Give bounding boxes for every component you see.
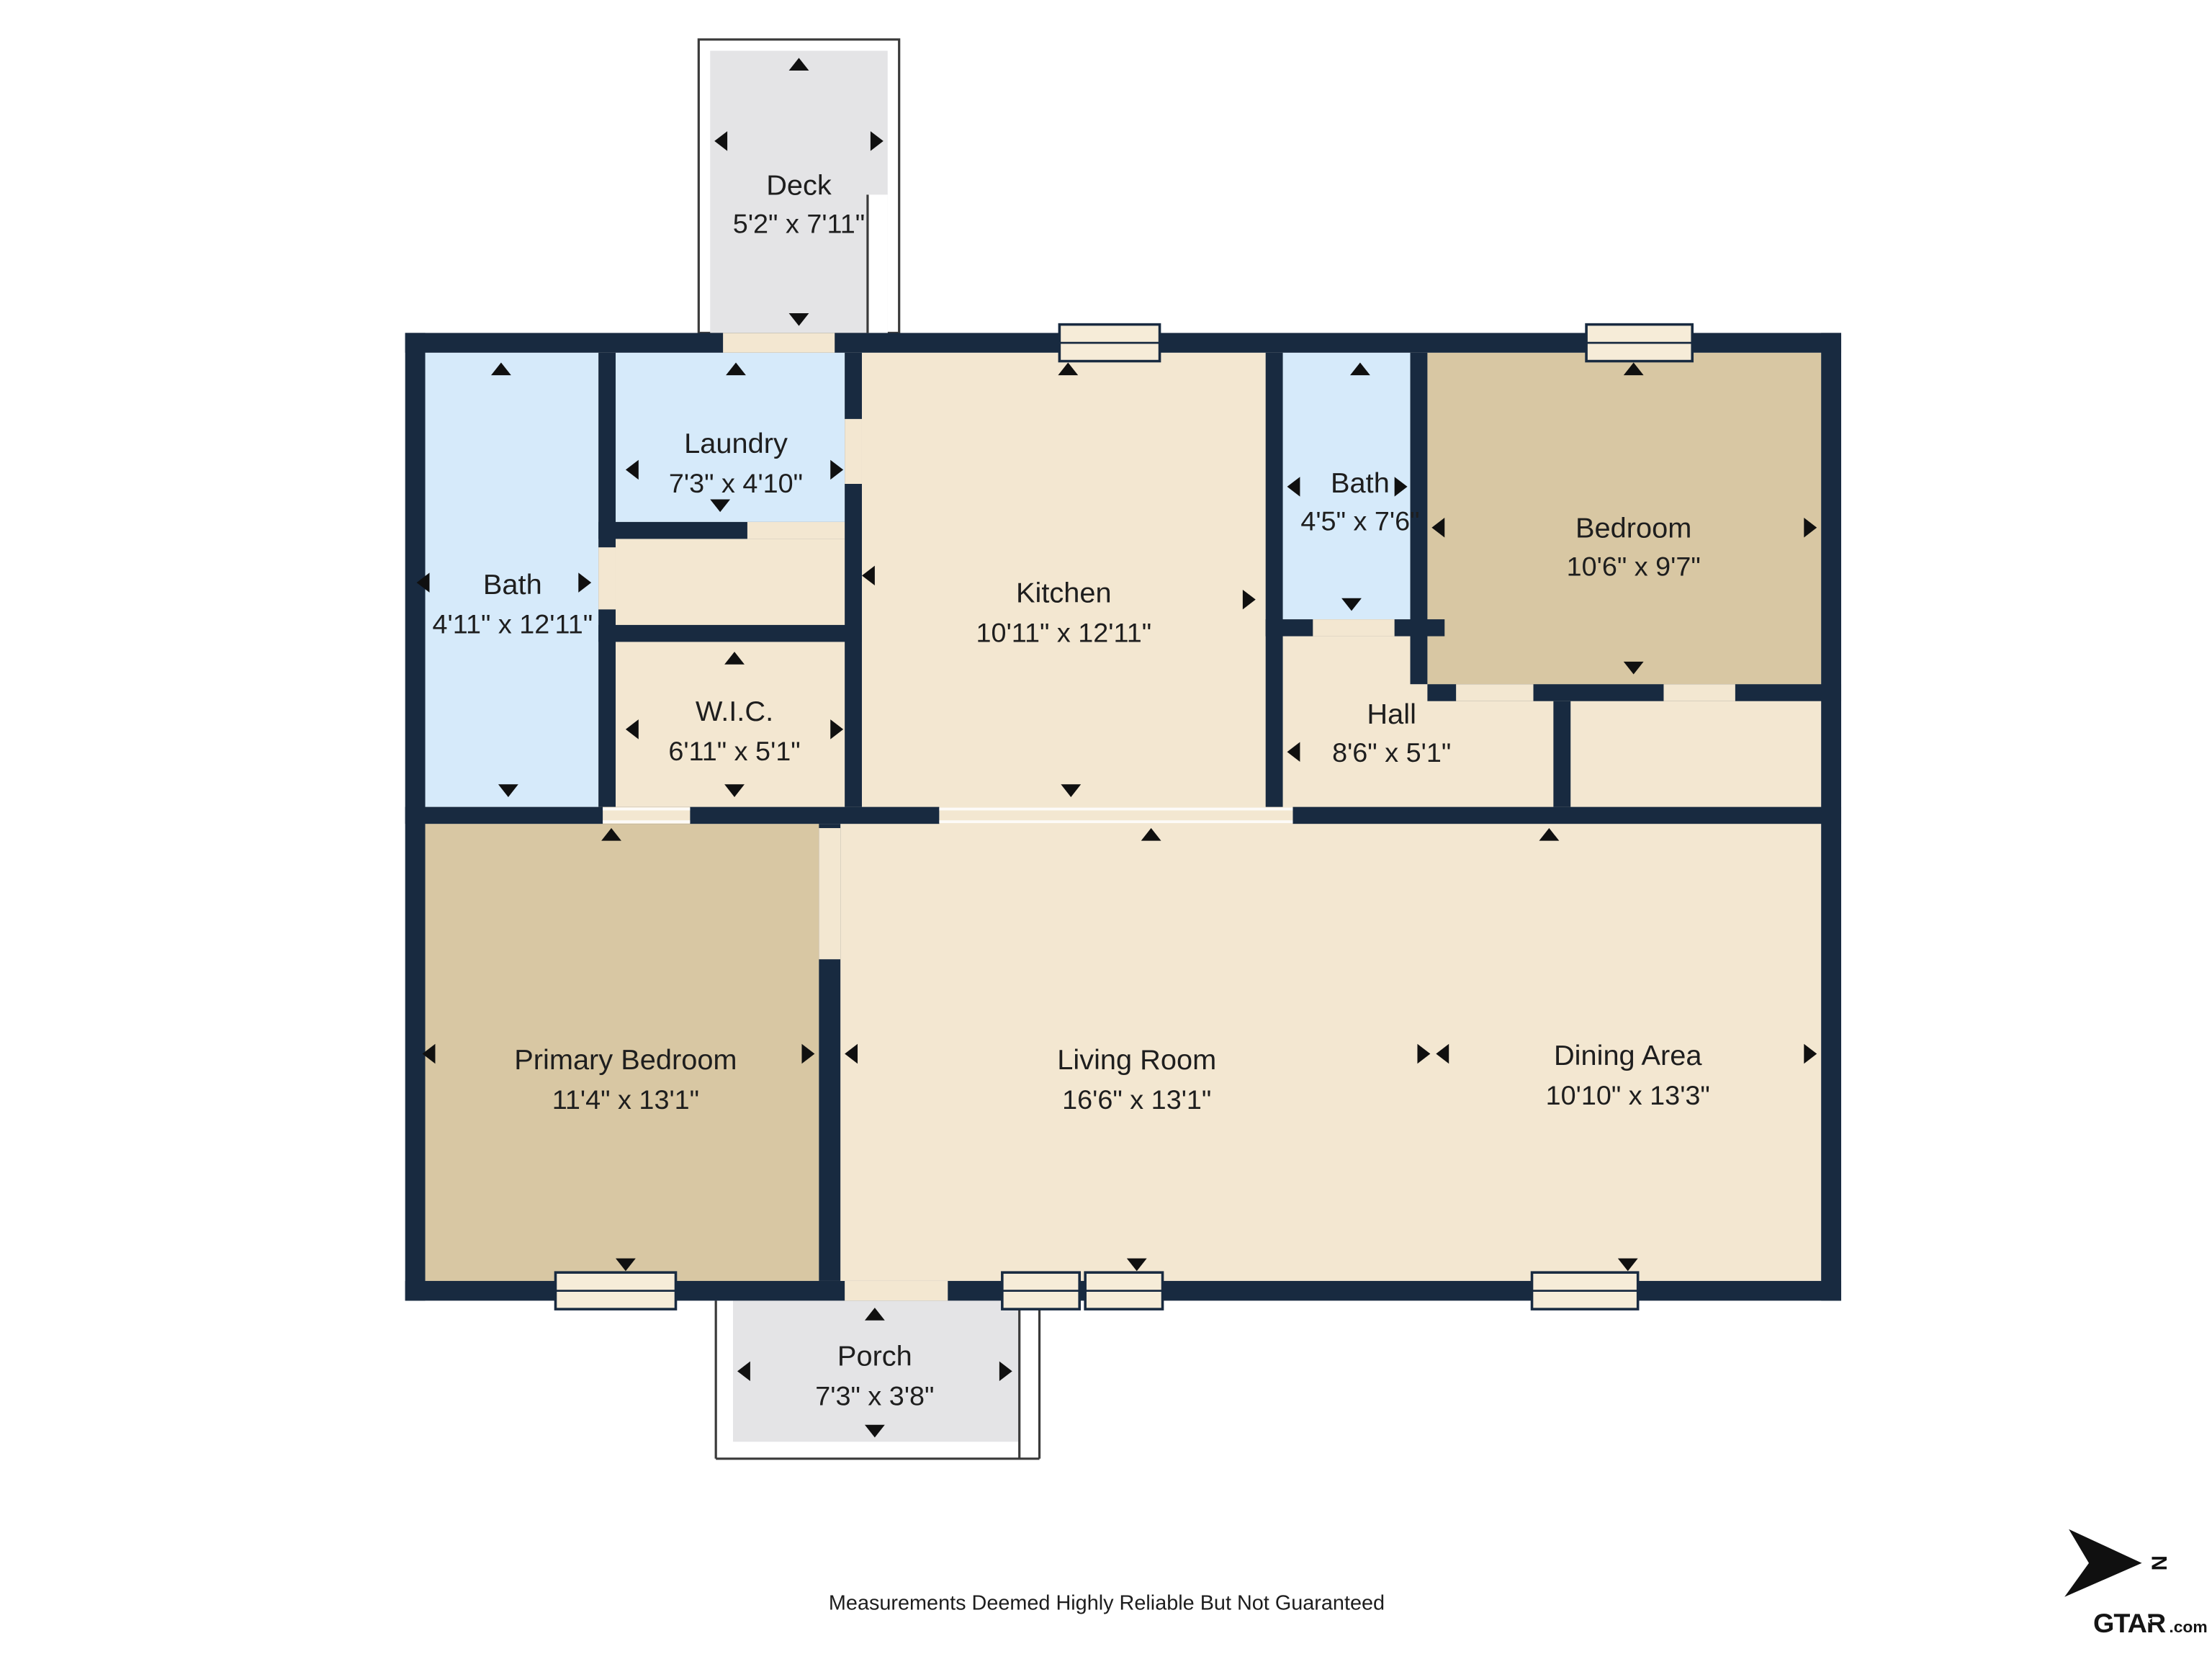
deck-opening xyxy=(868,194,888,333)
room-name: Bath xyxy=(483,569,542,601)
room-name: Bedroom xyxy=(1575,513,1691,544)
room-name: W.I.C. xyxy=(696,696,773,727)
door-primary-bedroom xyxy=(819,828,840,959)
room-dims: 6'11" x 5'1" xyxy=(668,736,800,766)
room-dims: 4'11" x 12'11" xyxy=(433,609,593,639)
window-bedroom xyxy=(1586,325,1692,361)
room-name: Dining Area xyxy=(1554,1040,1702,1071)
door-laundry-kitchen xyxy=(845,419,862,484)
room-name: Bath xyxy=(1331,467,1390,499)
room-dims: 5'2" x 7'11" xyxy=(733,209,865,239)
door-bath-left xyxy=(598,547,616,609)
door-laundry-vestibule xyxy=(747,522,845,539)
room-name: Deck xyxy=(766,170,832,202)
window-living-1 xyxy=(1002,1272,1079,1309)
room-name: Living Room xyxy=(1057,1044,1216,1076)
room-name: Laundry xyxy=(684,428,788,459)
logo-brand-text: GTAR xyxy=(2093,1608,2166,1638)
wall-mid-right xyxy=(1292,807,1841,824)
wall-kitchen-hall xyxy=(1266,353,1283,807)
door-bedroom-hall xyxy=(1456,684,1533,701)
room-name: Porch xyxy=(837,1341,912,1372)
room-dims: 7'3" x 3'8" xyxy=(815,1381,934,1411)
room-dims: 4'5" x 7'6" xyxy=(1300,506,1419,536)
room-dims: 11'4" x 13'1" xyxy=(552,1084,699,1115)
window-dining xyxy=(1532,1272,1638,1309)
window-kitchen xyxy=(1059,325,1159,361)
door-bath-right xyxy=(1313,619,1394,637)
room-dims: 8'6" x 5'1" xyxy=(1332,737,1451,768)
door-bedroom-closet xyxy=(1663,684,1735,701)
floor-plan: Deck 5'2" x 7'11" Bath 4'11" x 12'11" La… xyxy=(0,0,2212,1659)
north-label: N xyxy=(2146,1555,2170,1570)
room-dims: 16'6" x 13'1" xyxy=(1062,1084,1211,1115)
room-dims: 10'10" x 13'3" xyxy=(1546,1080,1710,1110)
north-compass: N xyxy=(2064,1529,2170,1597)
wall-wic-top xyxy=(598,625,862,642)
texas-star-icon: ★ xyxy=(2142,1612,2154,1627)
room-dims: 10'11" x 12'11" xyxy=(976,618,1152,648)
logo-suffix-text: .com xyxy=(2169,1617,2207,1636)
north-arrow-icon xyxy=(2064,1529,2141,1597)
gtar-logo: GTAR .com ★ xyxy=(2093,1608,2208,1638)
door-porch xyxy=(845,1281,948,1300)
room-name: Primary Bedroom xyxy=(514,1044,737,1076)
porch-area xyxy=(716,1300,1039,1458)
room-name: Kitchen xyxy=(1016,577,1112,609)
window-living-2 xyxy=(1085,1272,1162,1309)
window-primary xyxy=(555,1272,675,1309)
door-deck xyxy=(723,333,835,352)
room-dims: 10'6" x 9'7" xyxy=(1567,552,1701,582)
wall-hall-closet xyxy=(1553,701,1570,807)
disclaimer-text: Measurements Deemed Highly Reliable But … xyxy=(829,1592,1385,1615)
room-name: Hall xyxy=(1367,698,1416,730)
room-dims: 7'3" x 4'10" xyxy=(669,468,803,498)
